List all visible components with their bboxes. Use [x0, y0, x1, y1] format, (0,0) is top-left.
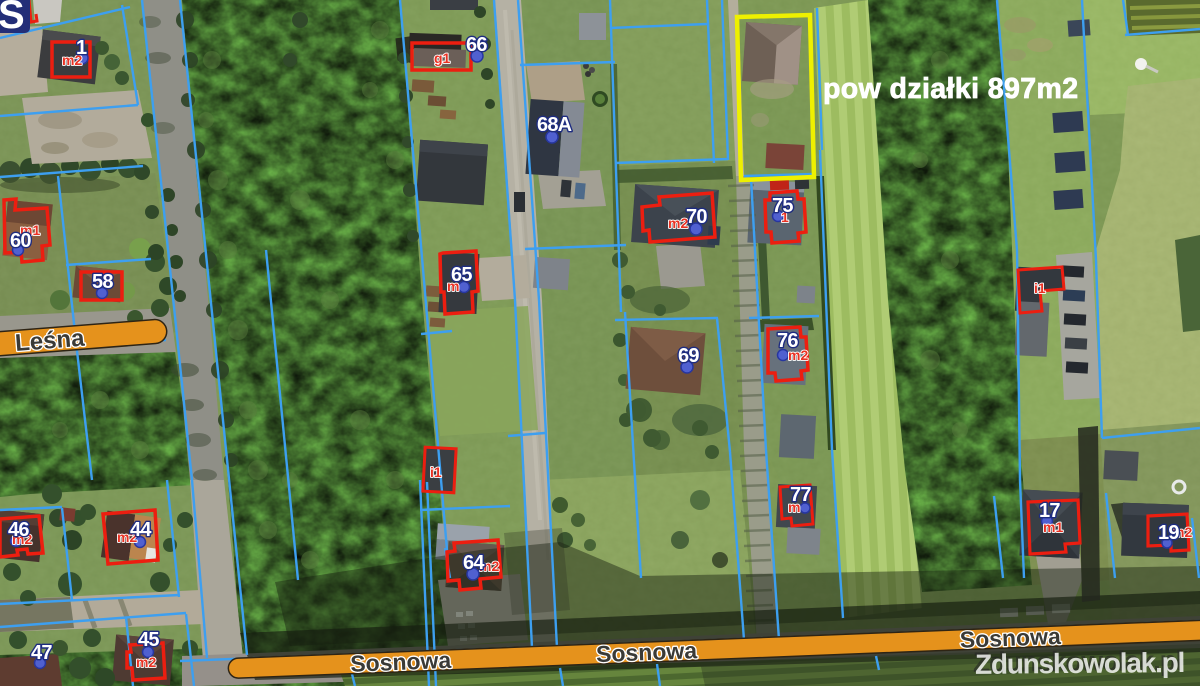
svg-text:70: 70	[686, 206, 707, 228]
svg-text:1: 1	[76, 37, 87, 59]
svg-text:g1: g1	[434, 50, 451, 66]
svg-text:64: 64	[463, 552, 485, 574]
svg-text:45: 45	[138, 629, 159, 651]
svg-text:S: S	[0, 0, 25, 37]
svg-text:46: 46	[8, 519, 29, 541]
svg-text:77: 77	[790, 484, 811, 506]
svg-text:i1: i1	[430, 464, 442, 480]
svg-text:i1: i1	[1034, 280, 1046, 296]
svg-text:17: 17	[1039, 500, 1060, 522]
svg-text:60: 60	[10, 230, 31, 252]
svg-text:Sosnowa: Sosnowa	[596, 637, 698, 667]
svg-text:44: 44	[130, 519, 152, 541]
svg-text:Zdunskowolak.pl: Zdunskowolak.pl	[975, 647, 1184, 680]
svg-text:m2: m2	[136, 654, 156, 670]
svg-text:68A: 68A	[537, 114, 572, 136]
svg-text:69: 69	[678, 345, 699, 367]
svg-text:58: 58	[92, 271, 113, 293]
svg-text:19: 19	[1158, 522, 1179, 544]
svg-text:75: 75	[772, 195, 793, 217]
svg-text:Leśna: Leśna	[14, 325, 86, 357]
svg-text:pow działki 897m2: pow działki 897m2	[823, 73, 1078, 105]
svg-text:Sosnowa: Sosnowa	[350, 647, 452, 677]
svg-text:65: 65	[451, 264, 472, 286]
svg-text:66: 66	[466, 34, 487, 56]
svg-text:47: 47	[31, 642, 52, 664]
svg-text:76: 76	[777, 330, 798, 352]
